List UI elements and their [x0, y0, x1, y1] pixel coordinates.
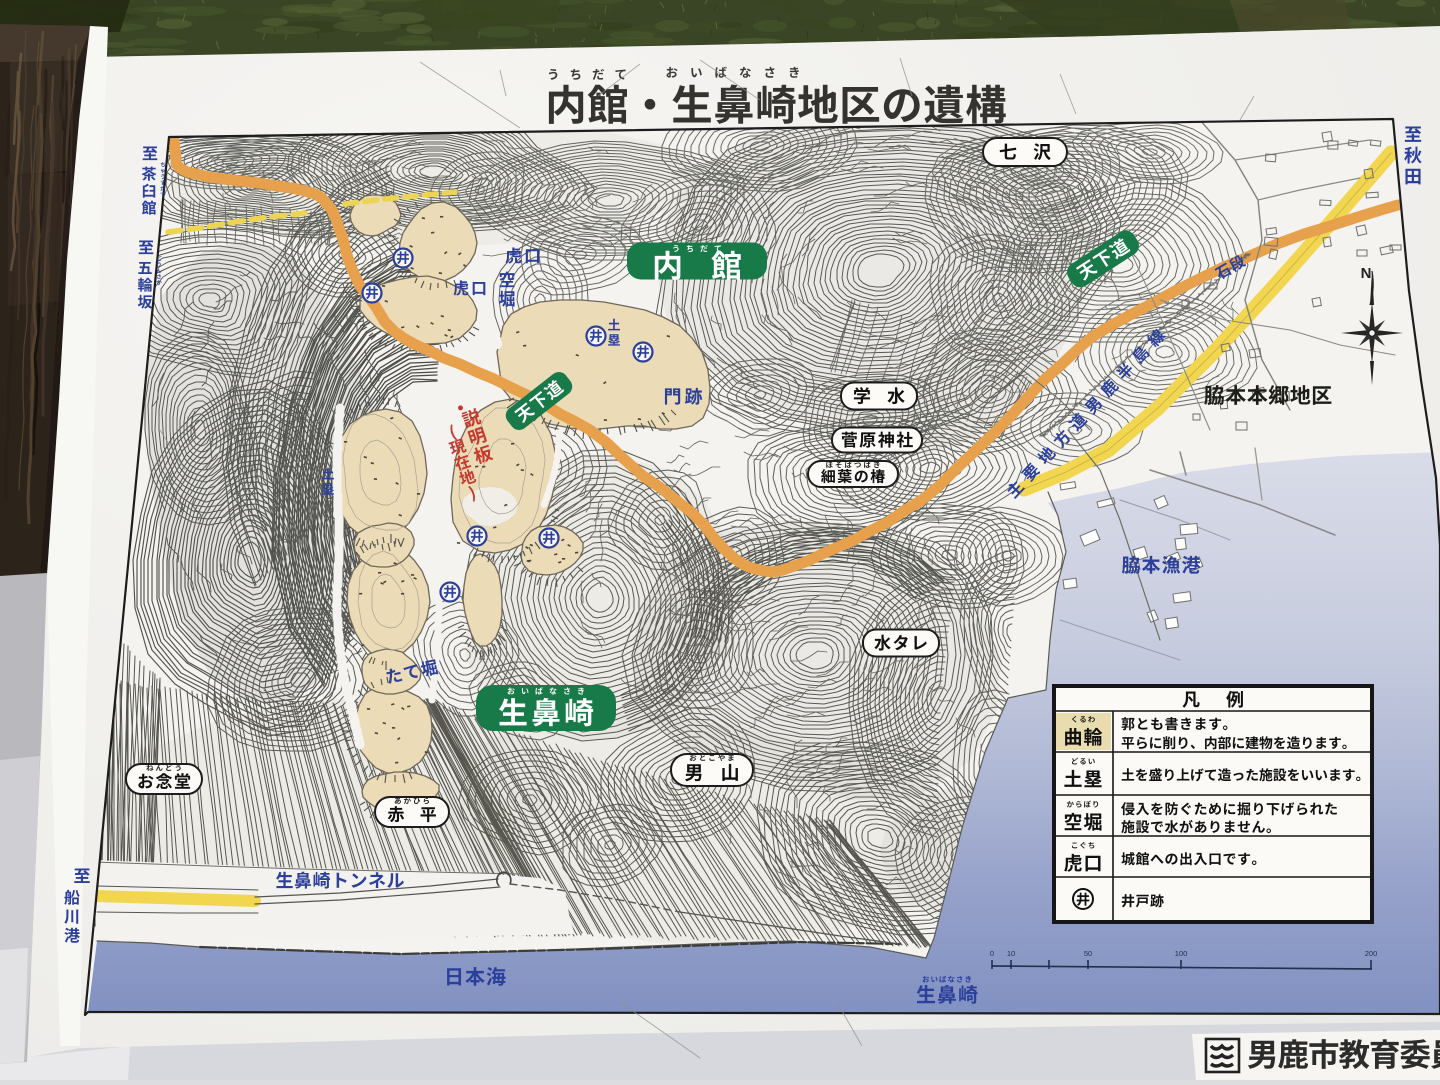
svg-text:N: N: [1361, 265, 1372, 282]
svg-text:200: 200: [1365, 949, 1378, 958]
svg-text:10: 10: [1007, 949, 1015, 958]
svg-text:100: 100: [1175, 949, 1188, 958]
svg-text:0: 0: [990, 949, 994, 958]
svg-text:50: 50: [1084, 949, 1092, 958]
